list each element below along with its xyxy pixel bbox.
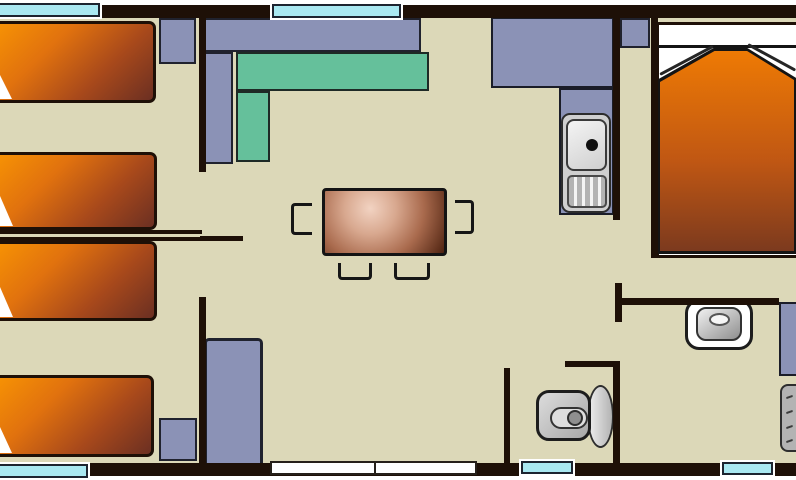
heater-mark [786, 425, 793, 429]
wall-partition-b [0, 237, 202, 241]
cupboard-bedroom-bottom [159, 418, 197, 461]
duvet [660, 51, 794, 251]
wall-bedrooms-upper [199, 18, 206, 172]
toilet [536, 390, 591, 441]
wall-partition-stub [200, 236, 243, 241]
wall-bedrooms-lower [199, 297, 206, 463]
chair-bottom-1 [338, 263, 372, 280]
toilet-flush-icon [567, 410, 583, 426]
window-bottom-wc [521, 461, 573, 474]
window-top-middle [272, 4, 401, 18]
window-bottom-bathroom [722, 462, 773, 475]
kitchen-sink [561, 113, 611, 213]
water-heater [780, 384, 796, 452]
window-top-left [0, 3, 100, 17]
heater-mark [786, 439, 793, 443]
washbasin [685, 299, 753, 350]
chair-right [455, 200, 474, 234]
sofa-backrest-top [202, 18, 421, 52]
wall-partition-a [0, 230, 202, 234]
wall-wc-north [565, 361, 620, 367]
toilet-lid [587, 385, 614, 448]
shower-cabinet [779, 302, 796, 376]
sofa-backrest-left [202, 52, 233, 164]
single-bed-4 [0, 375, 154, 457]
single-bed-3 [0, 241, 157, 321]
floor-plan [0, 0, 796, 480]
wardrobe [204, 338, 263, 463]
blanket-fold [0, 75, 12, 99]
cupboard-hall [620, 18, 650, 48]
entrance-door [270, 461, 477, 475]
cupboard-bedroom-top [159, 18, 196, 64]
blanket-fold [0, 427, 12, 453]
sink-drain-icon [586, 139, 598, 151]
dining-table [322, 188, 447, 256]
sofa-seat-left [236, 91, 270, 162]
blanket-fold [0, 196, 13, 226]
chair-bottom-2 [394, 263, 430, 280]
wall-wc-east [613, 361, 620, 463]
window-bottom-left [0, 464, 88, 478]
wall-bathroom [620, 298, 779, 305]
sink-drainer [567, 175, 607, 208]
headboard-line [658, 45, 796, 48]
heater-mark [786, 410, 793, 414]
washbasin-faucet-icon [709, 313, 730, 326]
wall-master-bedroom [651, 18, 658, 258]
wall-kitchen [613, 16, 620, 220]
chair-left [291, 203, 312, 235]
kitchen-counter-top [491, 17, 614, 88]
single-bed-1 [0, 21, 156, 103]
heater-mark [786, 395, 793, 399]
wall-wc-west [504, 368, 510, 463]
sofa-seat-top [236, 52, 429, 91]
door-panel-divider [374, 463, 376, 473]
single-bed-2 [0, 152, 157, 230]
blanket-fold [0, 287, 13, 317]
